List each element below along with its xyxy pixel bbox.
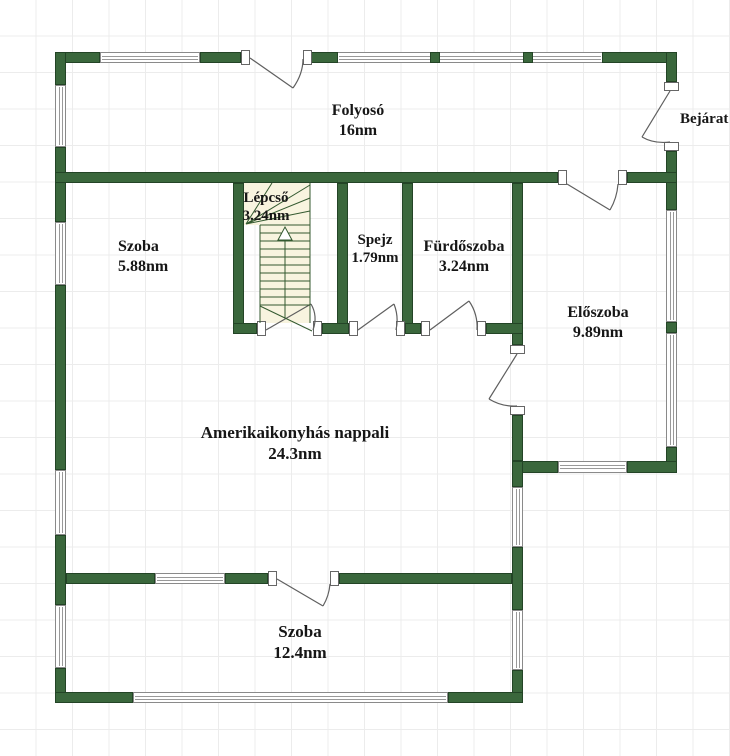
wall-segment <box>627 172 677 183</box>
door-jamb <box>510 345 525 354</box>
wall-segment <box>627 461 677 473</box>
room-name: Folyosó <box>332 102 384 119</box>
stair-run-area <box>260 224 310 323</box>
room-name: Fürdőszoba <box>424 238 505 255</box>
wall-segment <box>66 573 155 584</box>
room-label-furdoszoba: Fürdőszoba 3.24nm <box>424 237 505 276</box>
window-mullion <box>666 322 677 333</box>
room-name: Szoba <box>118 238 159 255</box>
door-jamb <box>664 82 679 91</box>
wall-segment <box>512 183 523 345</box>
window <box>133 692 448 703</box>
door-jamb <box>396 321 405 336</box>
room-label-spejz: Spejz 1.79nm <box>351 231 398 268</box>
door-jamb <box>303 50 312 65</box>
room-area: 9.89nm <box>567 323 628 343</box>
wall-segment <box>448 692 523 703</box>
entrance-text: Bejárat <box>680 111 728 127</box>
room-label-folyoso: Folyosó 16nm <box>332 101 384 140</box>
window-mullion <box>430 52 440 63</box>
wall-segment <box>55 285 66 470</box>
room-label-nappali: Amerikaikonyhás nappali 24.3nm <box>201 423 389 464</box>
wall-segment <box>225 573 268 584</box>
room-name: Szoba <box>278 622 321 641</box>
door-jamb <box>510 406 525 415</box>
wall-segment <box>666 52 677 82</box>
window <box>512 610 523 670</box>
wall-segment <box>55 147 66 222</box>
room-area: 5.88nm <box>118 257 168 277</box>
window <box>512 487 523 547</box>
room-label-szoba-felso: Szoba 5.88nm <box>118 237 168 276</box>
door-swing-nappali-eloszoba <box>489 354 517 406</box>
window <box>55 222 66 285</box>
wall-segment <box>512 461 523 487</box>
wall-segment <box>512 415 523 461</box>
wall-segment <box>311 52 338 63</box>
door-jamb <box>330 571 339 586</box>
room-name: Spejz <box>358 232 393 248</box>
wall-segment <box>55 172 558 183</box>
entrance-label: Bejárat <box>680 110 728 128</box>
door-swing-folyoso-entry <box>250 58 303 88</box>
door-jamb <box>257 321 266 336</box>
door-jamb <box>421 321 430 336</box>
window-mullion <box>523 52 533 63</box>
door-swing-furdoszoba <box>430 301 477 330</box>
wall-segment <box>339 573 512 584</box>
window <box>55 85 66 147</box>
window <box>55 470 66 535</box>
wall-segment <box>486 323 523 334</box>
room-area: 3.24nm <box>242 207 289 225</box>
door-jamb <box>664 142 679 151</box>
window <box>666 210 677 322</box>
room-name: Amerikaikonyhás nappali <box>201 423 389 442</box>
window <box>666 333 677 447</box>
door-jamb <box>558 170 567 185</box>
wall-segment <box>402 183 413 334</box>
window <box>337 52 603 63</box>
window <box>100 52 200 63</box>
door-jamb <box>241 50 250 65</box>
wall-segment <box>200 52 241 63</box>
room-area: 12.4nm <box>273 643 326 664</box>
wall-segment <box>405 323 421 334</box>
room-area: 3.24nm <box>424 257 505 277</box>
floor-plan: Folyosó 16nm Bejárat Szoba 5.88nm Lépcső… <box>0 0 730 756</box>
door-swing-eloszoba <box>567 184 618 210</box>
door-jamb <box>268 571 277 586</box>
room-name: Lépcső <box>244 190 289 206</box>
door-swing-spejz <box>358 304 397 330</box>
room-area: 1.79nm <box>351 249 398 267</box>
wall-segment <box>322 323 349 334</box>
window <box>155 573 225 584</box>
door-jamb <box>477 321 486 336</box>
room-label-szoba-also: Szoba 12.4nm <box>273 622 326 663</box>
room-area: 16nm <box>332 121 384 141</box>
door-jamb <box>349 321 358 336</box>
window <box>55 605 66 668</box>
wall-segment <box>55 535 66 605</box>
door-swing-szoba-also <box>277 579 330 606</box>
wall-segment <box>512 547 523 610</box>
window <box>558 461 627 473</box>
wall-segment <box>55 52 66 85</box>
door-jamb <box>313 321 322 336</box>
door-swing-bejarat <box>642 91 670 142</box>
room-label-eloszoba: Előszoba 9.89nm <box>567 303 628 342</box>
wall-segment <box>55 692 133 703</box>
room-area: 24.3nm <box>201 444 389 465</box>
wall-segment <box>337 183 348 334</box>
room-label-lepcso: Lépcső 3.24nm <box>242 189 289 226</box>
wall-segment <box>233 323 257 334</box>
door-jamb <box>618 170 627 185</box>
room-name: Előszoba <box>567 304 628 321</box>
